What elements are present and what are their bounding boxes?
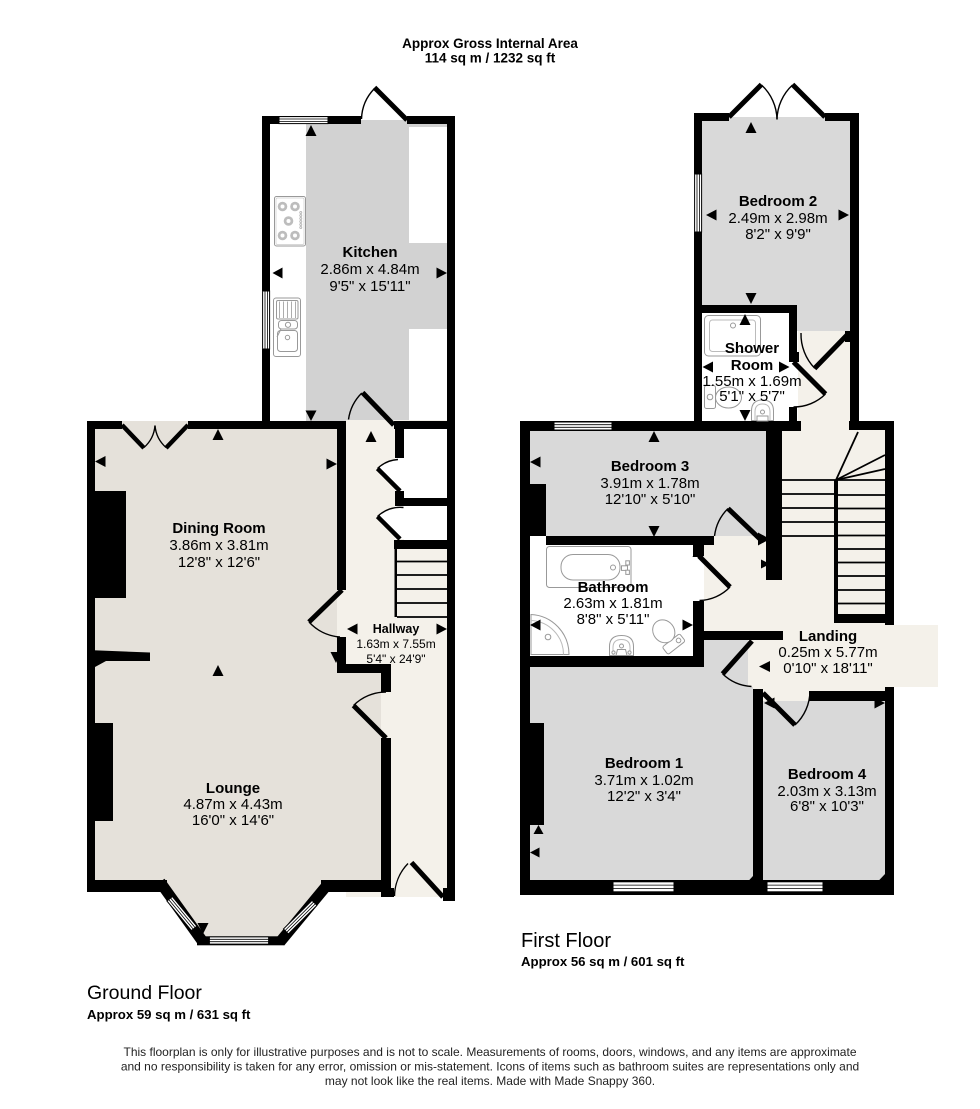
svg-text:12'8" x 12'6": 12'8" x 12'6": [178, 554, 260, 571]
svg-text:may not look like the real ite: may not look like the real items. Made w…: [325, 1074, 655, 1088]
svg-text:5'1" x 5'7": 5'1" x 5'7": [719, 388, 785, 405]
svg-text:0'10" x 18'11": 0'10" x 18'11": [783, 660, 873, 677]
svg-text:0.25m x 5.77m: 0.25m x 5.77m: [778, 644, 877, 661]
svg-text:Hallway: Hallway: [373, 622, 420, 636]
svg-text:Ground Floor: Ground Floor: [87, 982, 202, 1004]
svg-text:3.91m x 1.78m: 3.91m x 1.78m: [600, 475, 699, 492]
svg-text:Shower: Shower: [725, 340, 779, 357]
svg-text:Bedroom 3: Bedroom 3: [611, 458, 689, 475]
svg-text:Landing: Landing: [799, 628, 857, 645]
svg-text:Lounge: Lounge: [206, 780, 260, 797]
svg-text:This floorplan is only for ill: This floorplan is only for illustrative …: [123, 1045, 856, 1059]
svg-text:9'5" x 15'11": 9'5" x 15'11": [329, 278, 410, 295]
svg-text:6'8" x 10'3": 6'8" x 10'3": [790, 798, 864, 815]
svg-text:Room: Room: [731, 357, 774, 374]
svg-text:8'2" x 9'9": 8'2" x 9'9": [745, 226, 811, 243]
svg-text:2.86m x 4.84m: 2.86m x 4.84m: [320, 261, 419, 278]
svg-text:and no responsibility is taken: and no responsibility is taken for any e…: [121, 1059, 859, 1073]
svg-text:16'0" x 14'6": 16'0" x 14'6": [192, 812, 274, 829]
svg-text:Approx 59 sq m / 631 sq ft: Approx 59 sq m / 631 sq ft: [87, 1007, 251, 1022]
svg-text:3.86m x 3.81m: 3.86m x 3.81m: [169, 537, 268, 554]
svg-text:12'2" x 3'4": 12'2" x 3'4": [607, 788, 681, 805]
svg-text:First Floor: First Floor: [521, 930, 611, 952]
svg-text:Bedroom 2: Bedroom 2: [739, 193, 817, 210]
svg-text:3.71m x 1.02m: 3.71m x 1.02m: [594, 772, 693, 789]
svg-text:1.63m x 7.55m: 1.63m x 7.55m: [356, 637, 435, 651]
svg-text:114 sq m / 1232 sq ft: 114 sq m / 1232 sq ft: [425, 51, 556, 66]
svg-text:4.87m x 4.43m: 4.87m x 4.43m: [183, 796, 282, 813]
svg-text:Bedroom 1: Bedroom 1: [605, 755, 683, 772]
svg-text:Bathroom: Bathroom: [578, 579, 649, 596]
svg-text:Kitchen: Kitchen: [342, 244, 397, 261]
svg-text:Approx Gross Internal Area: Approx Gross Internal Area: [402, 36, 578, 51]
svg-text:Approx 56 sq m / 601 sq ft: Approx 56 sq m / 601 sq ft: [521, 954, 685, 969]
svg-text:2.49m x 2.98m: 2.49m x 2.98m: [728, 210, 827, 227]
svg-text:5'4" x 24'9": 5'4" x 24'9": [366, 652, 425, 666]
svg-text:8'8" x 5'11": 8'8" x 5'11": [577, 611, 650, 628]
svg-text:2.63m x 1.81m: 2.63m x 1.81m: [563, 595, 662, 612]
svg-text:Bedroom 4: Bedroom 4: [788, 766, 867, 783]
svg-text:Dining Room: Dining Room: [172, 520, 265, 537]
svg-text:12'10" x 5'10": 12'10" x 5'10": [605, 491, 696, 508]
